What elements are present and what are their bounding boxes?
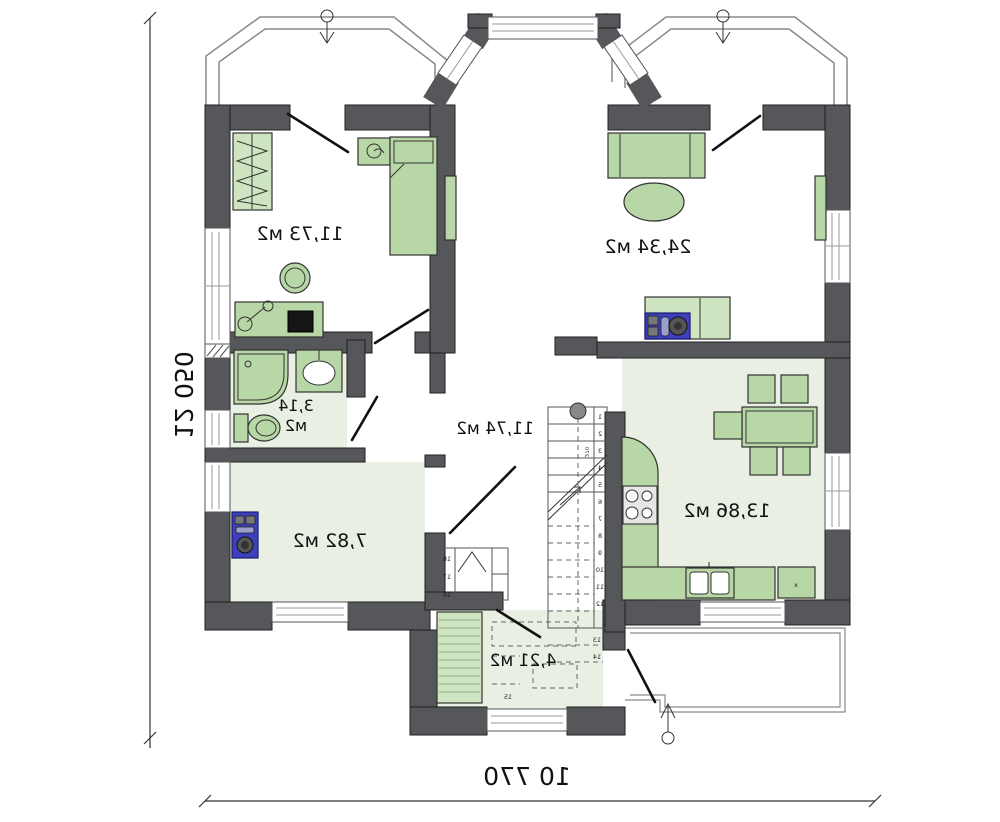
svg-text:12: 12: [596, 600, 604, 608]
bay-window-left: [438, 35, 482, 85]
desk-monitor: [288, 311, 313, 332]
hanger-symbol: [458, 552, 486, 572]
svg-text:8: 8: [598, 532, 602, 540]
svg-text:3: 3: [598, 447, 602, 455]
window: [700, 602, 785, 622]
cooktop: [623, 486, 657, 524]
door-bedroom1: [288, 114, 348, 152]
svg-text:11: 11: [596, 583, 604, 591]
svg-text:7: 7: [598, 515, 602, 523]
roof-arrow-right: [716, 10, 730, 43]
door-bathroom: [352, 397, 377, 440]
window: [205, 228, 230, 344]
window: [825, 453, 850, 530]
bathroom-area-label-2: м2: [285, 416, 307, 435]
dimension-horizontal-value: 10 770: [483, 762, 570, 791]
newel-post: [570, 403, 586, 419]
svg-text:17: 17: [443, 573, 451, 581]
svg-text:9: 9: [598, 549, 602, 557]
roof-arrow-left: [320, 10, 334, 43]
washing-machine: [232, 512, 258, 558]
window: [205, 410, 230, 448]
desk: [235, 301, 323, 337]
bed: [390, 137, 437, 255]
door-storage: [450, 467, 515, 533]
porch-outline: [625, 628, 845, 744]
landing-step-number: 15: [504, 693, 512, 701]
fridge: x: [778, 567, 815, 598]
dimension-bottom: 10 770: [199, 762, 881, 807]
nightstand: [358, 138, 390, 165]
svg-text:10: 10: [596, 566, 604, 574]
stair-riser-note: 270: [583, 446, 589, 457]
bay-window-right: [604, 35, 648, 85]
toilet: [234, 414, 280, 442]
chair: [783, 447, 810, 475]
svg-text:4: 4: [598, 464, 602, 472]
dimension-left: 12 050: [144, 12, 198, 748]
kitchen-area-label: 13,86 м2: [684, 500, 771, 522]
floor-plan-page: x: [0, 0, 1000, 822]
living-area-label: 24,34 м2: [605, 236, 692, 258]
floor-plan-drawing: x: [0, 0, 1000, 822]
window: [825, 210, 850, 283]
svg-text:16: 16: [443, 591, 451, 599]
chair: [781, 375, 808, 403]
kitchen-sink: [686, 562, 734, 598]
svg-text:6: 6: [598, 498, 602, 506]
bedroom1-area-label: 11,73 м2: [257, 223, 344, 245]
dining-table: [742, 407, 817, 447]
wardrobe: [233, 133, 272, 210]
window: [487, 709, 567, 731]
svg-text:13: 13: [593, 636, 601, 644]
rug: [624, 183, 684, 221]
storage-area-label: 7,82 м2: [293, 530, 368, 552]
sink: [296, 350, 342, 392]
entry-wardrobe: [437, 612, 482, 703]
entry-area-label: 4,21 м2: [490, 651, 557, 671]
bay-window-top: [488, 17, 598, 39]
svg-text:18: 18: [443, 555, 451, 563]
svg-text:5: 5: [598, 481, 602, 489]
stove-appliance: [645, 313, 690, 339]
svg-text:14: 14: [593, 653, 601, 661]
wall-shelf: [445, 176, 456, 240]
door-porch: [628, 650, 655, 702]
window: [272, 602, 348, 622]
door-living: [713, 116, 760, 150]
bathroom-area-label-1: 3,14: [278, 396, 314, 415]
wall-shelf: [815, 176, 826, 240]
entrance-arrow: [661, 704, 675, 744]
shaft-hatch: [205, 344, 230, 358]
hall-area-label: 11,74 м2: [456, 419, 534, 439]
chair: [750, 447, 777, 475]
svg-text:1: 1: [598, 413, 602, 421]
stool: [280, 263, 310, 293]
stair-direction-arrow: [560, 487, 580, 505]
bed-double: [608, 133, 705, 178]
svg-text:2: 2: [598, 430, 602, 438]
window: [205, 462, 230, 512]
chair: [748, 375, 775, 403]
fridge-mark: x: [794, 581, 798, 589]
chair: [714, 412, 742, 439]
dimension-vertical-value: 12 050: [169, 351, 198, 438]
